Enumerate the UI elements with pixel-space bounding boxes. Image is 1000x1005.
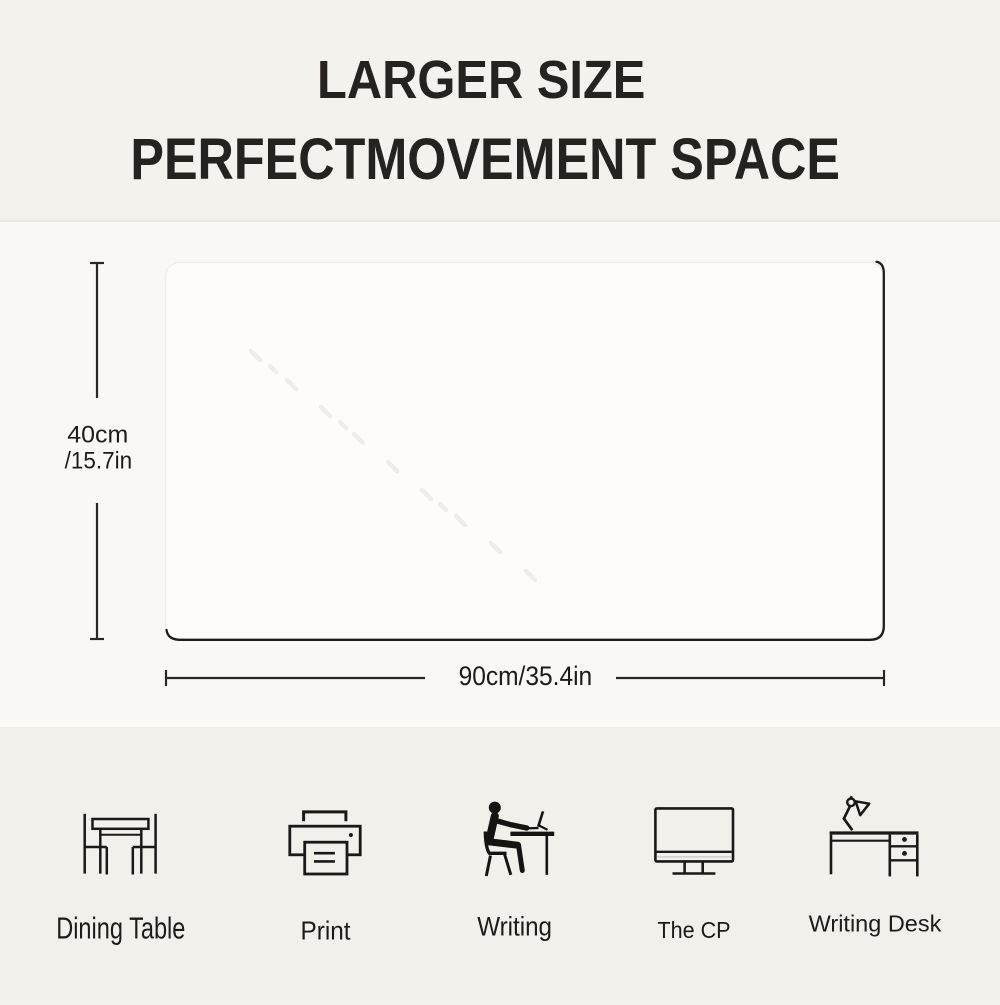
svg-text:Print: Print bbox=[301, 916, 352, 946]
svg-text:90cm/35.4in: 90cm/35.4in bbox=[459, 660, 593, 691]
svg-text:Writing Desk: Writing Desk bbox=[809, 911, 942, 937]
svg-text:40cm: 40cm bbox=[67, 422, 128, 449]
svg-text:Dining Table: Dining Table bbox=[56, 910, 185, 945]
svg-text:The CP: The CP bbox=[657, 917, 730, 943]
svg-text:LARGER SIZE: LARGER SIZE bbox=[317, 50, 645, 110]
svg-text:Writing: Writing bbox=[477, 911, 552, 942]
svg-text:/15.7in: /15.7in bbox=[65, 448, 133, 475]
svg-text:PERFECTMOVEMENT SPACE: PERFECTMOVEMENT SPACE bbox=[130, 127, 840, 192]
